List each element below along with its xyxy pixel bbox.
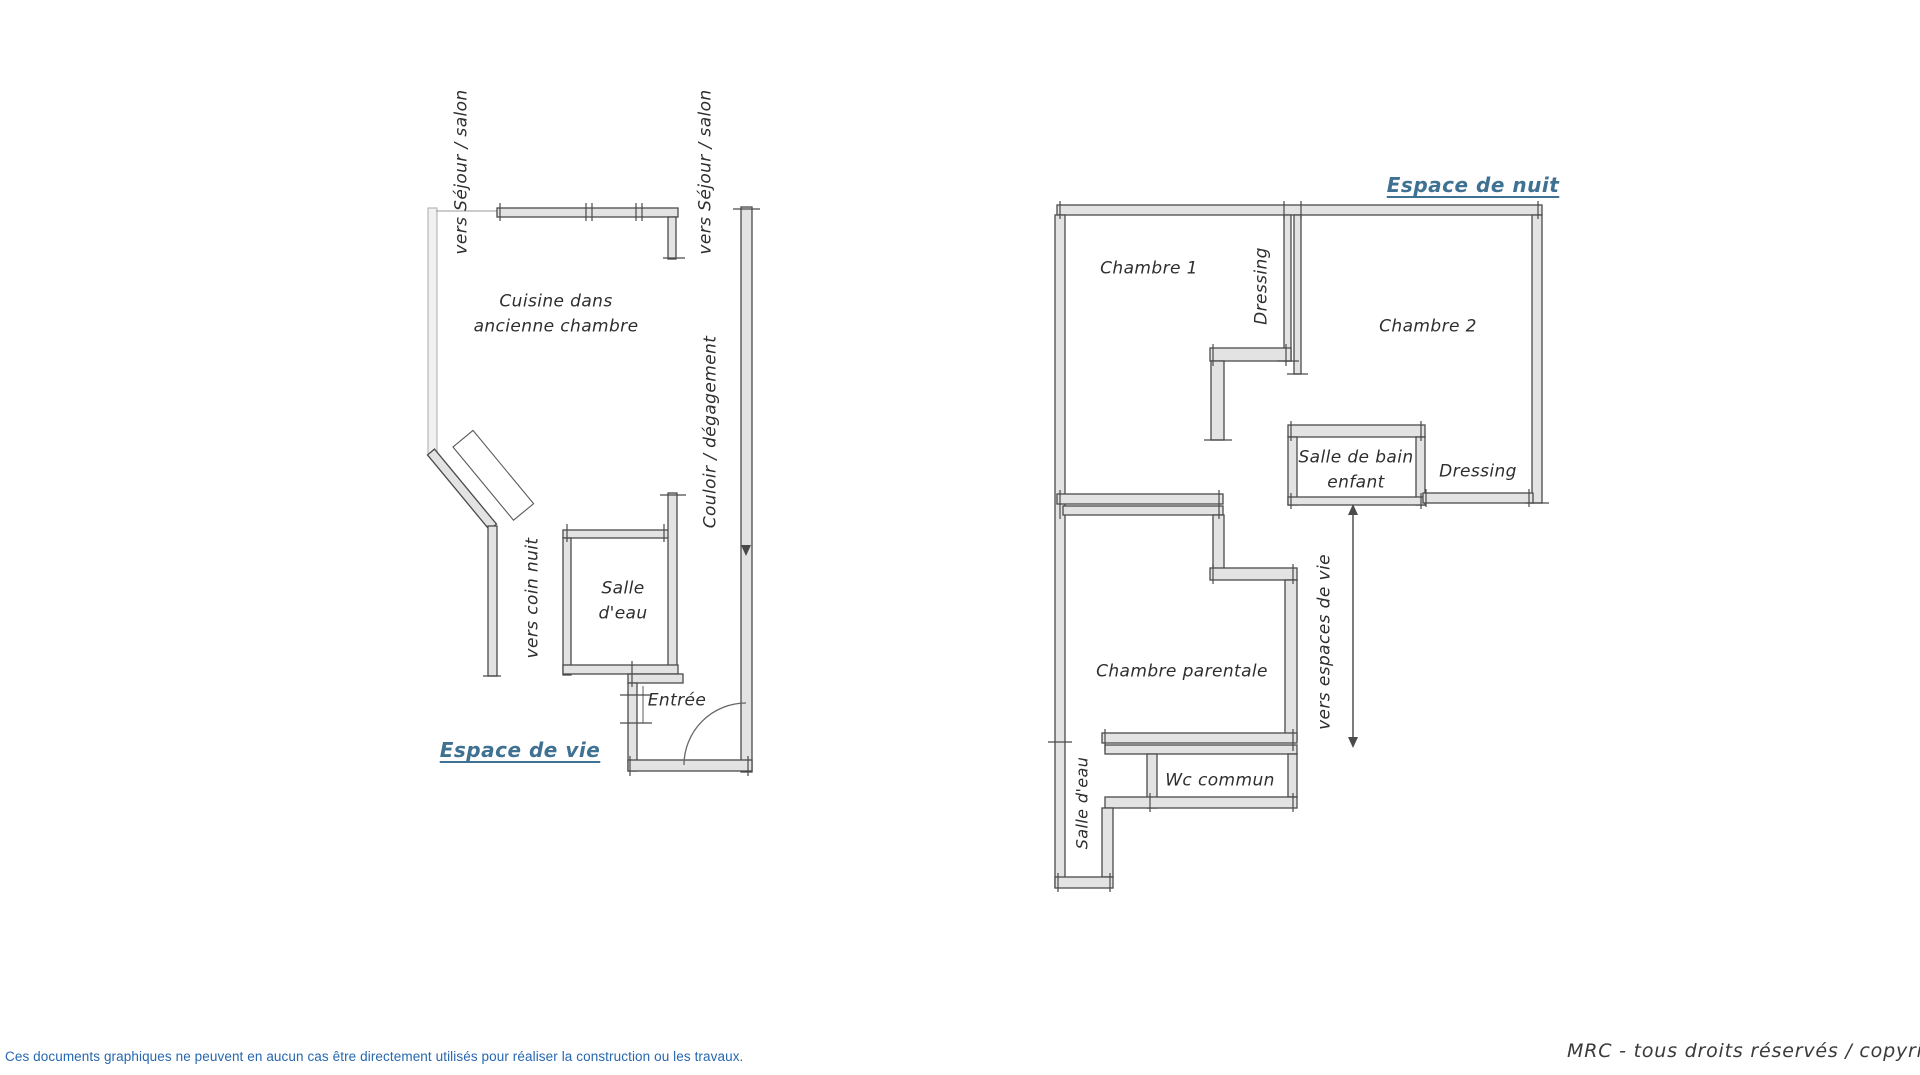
label-salle-eau-left: Salle d'eau <box>513 576 733 625</box>
label-vers-sejour-salon-2: vers Séjour / salon <box>694 89 719 254</box>
corridor-wall <box>741 207 752 772</box>
label-chambre-2: Chambre 2 <box>1379 315 1477 340</box>
label-dressing-2: Dressing <box>1439 460 1517 485</box>
label-salle-de-bain-enfant: Salle de bain enfant <box>1281 445 1431 494</box>
label-wc-commun: Wc commun <box>1165 769 1275 794</box>
label-chambre-1: Chambre 1 <box>1100 257 1198 282</box>
zone-title-espace-de-nuit: Espace de nuit <box>1387 173 1560 197</box>
arrow-down-icon <box>1348 737 1358 748</box>
label-salle-eau-right: Salle d'eau <box>1070 757 1093 850</box>
floor-plan-right-walls <box>1055 205 1542 888</box>
faded-wall <box>428 208 437 454</box>
label-couloir-degagement: Couloir / dégagement <box>699 336 724 529</box>
footer-copyright: MRC - tous droits réservés / copyright° <box>1567 1040 1920 1062</box>
zone-title-espace-de-vie: Espace de vie <box>440 738 601 762</box>
footer-disclaimer: Ces documents graphiques ne peuvent en a… <box>5 1049 743 1064</box>
label-salle-eau-left-line1: Salle <box>601 578 644 598</box>
diagonal-wall <box>428 449 497 530</box>
label-salle-de-bain-enfant-line1: Salle de bain <box>1298 447 1413 467</box>
label-vers-sejour-salon-1: vers Séjour / salon <box>450 89 475 254</box>
label-vers-espaces-de-vie: vers espaces de vie <box>1313 554 1338 730</box>
label-cuisine-line1: Cuisine dans <box>499 291 612 311</box>
label-chambre-parentale: Chambre parentale <box>1096 660 1268 685</box>
floor-plan-sheet: vers Séjour / salon vers Séjour / salon … <box>0 0 1920 1075</box>
diagonal-dimension-marker <box>453 430 534 520</box>
label-cuisine-line2: ancienne chambre <box>474 316 639 336</box>
label-entree: Entrée <box>648 689 707 714</box>
label-cuisine: Cuisine dans ancienne chambre <box>446 289 666 338</box>
label-dressing-1: Dressing <box>1250 247 1275 325</box>
floor-plan-drawing <box>0 0 1920 1075</box>
label-salle-de-bain-enfant-line2: enfant <box>1327 472 1384 492</box>
label-salle-eau-left-line2: d'eau <box>598 603 647 623</box>
